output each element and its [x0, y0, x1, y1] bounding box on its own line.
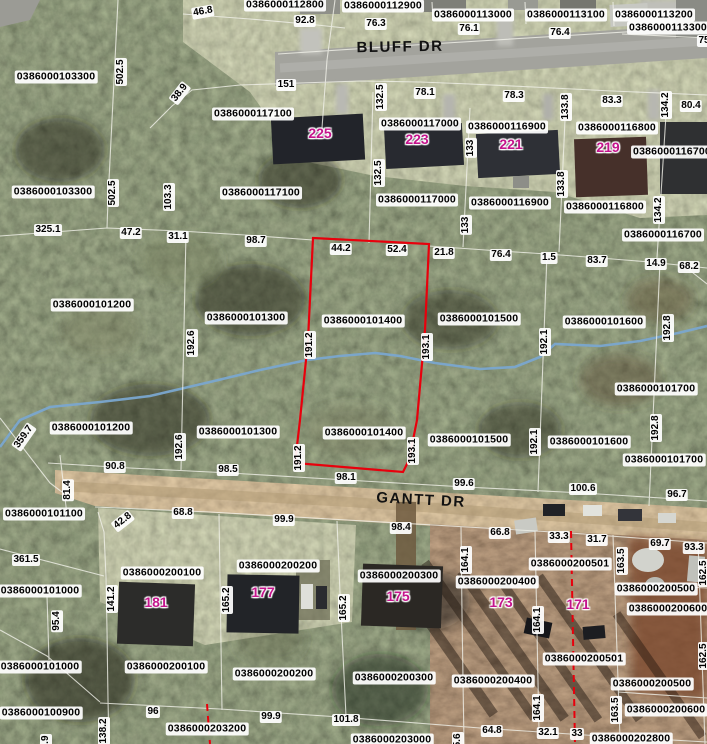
dimension-label: 101.8	[332, 714, 360, 726]
parcel-id-label: 0386000200100	[125, 661, 208, 674]
dimension-label: 163.5	[616, 547, 628, 575]
parcel-id-label: 0386000200200	[233, 668, 316, 681]
dimension-label: 92.8	[294, 15, 316, 27]
dimension-label: 38.9	[168, 80, 191, 105]
parcel-id-label: 0386000101400	[323, 427, 406, 440]
parcel-id-label: 0386000200500	[611, 678, 694, 691]
parcel-id-label: 0386000117000	[379, 118, 461, 131]
dimension-label: 96.7	[666, 489, 688, 501]
dimension-label: 99.6	[453, 478, 475, 490]
parcel-id-label: 0386000113100	[525, 9, 607, 22]
house-number-label: 173	[489, 594, 512, 610]
dimension-label: 134.2	[653, 196, 665, 224]
dimension-label: 138.2	[98, 717, 110, 744]
parcel-id-label: 0386000200500	[615, 583, 698, 596]
house-number-label: 171	[566, 596, 589, 612]
parcel-id-label: 0386000116900	[469, 197, 551, 210]
dimension-label: 192.1	[529, 428, 541, 456]
parcel-id-label: 0386000101500	[438, 313, 521, 326]
house-number-label: 223	[405, 131, 428, 147]
dimension-label: 98.1	[335, 472, 357, 484]
parcel-id-label: 0386000101000	[0, 585, 81, 598]
dimension-label: 103.3	[163, 183, 175, 211]
parcel-id-label: 0386000116700	[631, 146, 707, 159]
dimension-label: 90.8	[104, 461, 126, 473]
dimension-label: 151	[276, 79, 296, 91]
dimension-label: 95.4	[51, 610, 63, 632]
dimension-label: 52.4	[386, 244, 408, 256]
dimension-label: 99.9	[273, 514, 295, 526]
parcel-id-label: 0386000116800	[564, 201, 646, 214]
parcel-id-label: 0386000103300	[12, 186, 95, 199]
parcel-id-label: 0386000200300	[358, 570, 441, 583]
parcel-id-label: 0386000112800	[244, 0, 326, 12]
street-name-label: BLUFF DR	[356, 38, 443, 57]
dimension-label: 164.1	[532, 694, 544, 722]
dimension-label: 502.5	[107, 179, 119, 207]
parcel-id-label: 0386000101300	[205, 312, 288, 325]
parcel-id-label: 0386000200300	[353, 672, 436, 685]
dimension-label: 81.4	[62, 479, 74, 501]
dimension-label: 133.8	[556, 170, 568, 198]
parcel-id-label: 0386000113300	[627, 22, 707, 35]
parcel-id-label: 0386000101600	[563, 316, 646, 329]
dimension-label: 44.2	[330, 243, 352, 255]
dimension-label: 98.4	[390, 522, 412, 534]
dimension-label: 46.8	[191, 4, 215, 20]
dimension-label: 192.6	[174, 433, 186, 461]
dimension-label: 193.1	[421, 333, 433, 361]
parcel-id-label: 0386000116700	[622, 229, 704, 242]
dimension-label: 132.5	[375, 83, 387, 111]
dimension-label: 133	[460, 215, 472, 235]
parcel-id-label: 0386000101500	[428, 434, 511, 447]
parcel-id-label: 0386000101700	[623, 454, 706, 467]
dimension-label: 96	[146, 706, 160, 718]
house-number-label: 181	[144, 594, 167, 610]
dimension-label: 78.3	[503, 90, 525, 102]
dimension-label: 192.8	[650, 414, 662, 442]
parcel-id-label: 0386000200100	[121, 567, 204, 580]
dimension-label: 191.2	[304, 331, 316, 359]
dimension-label: 76.4	[549, 27, 571, 39]
parcel-id-label: 0386000200400	[452, 675, 535, 688]
house-number-label: 225	[308, 125, 331, 141]
parcel-id-label: 0386000200400	[456, 576, 539, 589]
parcel-id-label: 0386000202800	[590, 733, 673, 744]
dimension-label: 165.2	[221, 586, 233, 614]
dimension-label: 192.1	[539, 328, 551, 356]
dimension-label: 83.7	[586, 255, 608, 267]
dimension-label: 31.1	[167, 231, 189, 243]
dimension-label: 83.3	[601, 95, 623, 107]
parcel-id-label: 0386000113200	[613, 9, 695, 22]
dimension-label: 76.4	[490, 249, 512, 261]
parcel-id-label: 0386000101200	[50, 422, 133, 435]
dimension-label: 193.1	[407, 437, 419, 465]
dimension-label: 162.5	[698, 559, 707, 587]
dimension-label: 137.9	[40, 734, 52, 744]
dimension-label: 76.1	[458, 23, 480, 35]
dimension-label: 100.6	[569, 483, 597, 495]
parcel-id-label: 0386000200600	[625, 704, 707, 717]
parcel-id-label: 0386000101300	[197, 426, 280, 439]
dimension-label: 66.8	[489, 527, 511, 539]
parcel-id-label: 0386000103300	[15, 71, 98, 84]
dimension-label: 132.5	[373, 159, 385, 187]
dimension-label: 192.8	[662, 314, 674, 342]
parcel-id-label: 0386000117000	[376, 194, 458, 207]
parcel-id-label: 0386000112900	[342, 0, 424, 13]
parcel-id-label: 0386000200200	[237, 560, 320, 573]
gis-map-viewport[interactable]: 0386000112800038600011290003860001130000…	[0, 0, 707, 744]
dimension-label: 68.2	[678, 261, 700, 273]
dimension-label: 191.2	[293, 444, 305, 472]
dimension-label: 502.5	[115, 58, 127, 86]
dimension-label: 163.5	[610, 696, 622, 724]
parcel-id-label: 0386000117100	[220, 187, 302, 200]
dimension-label: 134.2	[660, 91, 672, 119]
dimension-label: 42.8	[110, 509, 135, 532]
house-number-label: 221	[499, 136, 522, 152]
dimension-label: 75	[697, 35, 707, 47]
dimension-label: 164.1	[532, 606, 544, 634]
dimension-label: 14.9	[645, 258, 667, 270]
parcel-id-label: 0386000101100	[3, 508, 85, 521]
dimension-label: 133	[465, 138, 477, 158]
dimension-label: 165.2	[338, 594, 350, 622]
dimension-label: 93.3	[683, 542, 705, 554]
dimension-label: 98.7	[245, 235, 267, 247]
dimension-label: 165.6	[452, 732, 464, 744]
parcel-id-label: 0386000113000	[432, 9, 514, 22]
parcel-id-label: 0386000200501	[543, 653, 626, 666]
parcel-id-label: 0386000101200	[51, 299, 134, 312]
parcel-id-label: 0386000101000	[0, 661, 81, 674]
dimension-label: 325.1	[34, 224, 62, 236]
street-name-label: GANTT DR	[376, 489, 466, 511]
dimension-label: 69.7	[649, 538, 671, 550]
dimension-label: 47.2	[120, 227, 142, 239]
house-number-label: 219	[596, 139, 619, 155]
dimension-label: 80.4	[680, 100, 702, 112]
dimension-label: 68.8	[172, 507, 194, 519]
parcel-id-label: 0386000200600	[627, 603, 707, 616]
parcel-id-label: 0386000100900	[0, 707, 82, 720]
dimension-label: 164.1	[460, 546, 472, 574]
dimension-label: 141.2	[106, 585, 118, 613]
dimension-label: 64.8	[481, 725, 503, 737]
map-labels-layer: 0386000112800038600011290003860001130000…	[0, 0, 707, 744]
parcel-id-label: 0386000101700	[615, 383, 698, 396]
dimension-label: 32.1	[537, 727, 559, 739]
dimension-label: 33.3	[548, 531, 570, 543]
parcel-id-label: 0386000101400	[322, 315, 405, 328]
dimension-label: 359.7	[11, 422, 37, 452]
parcel-id-label: 0386000203200	[166, 723, 249, 736]
dimension-label: 21.8	[433, 247, 455, 259]
dimension-label: 99.9	[260, 711, 282, 723]
parcel-id-label: 0386000117100	[212, 108, 294, 121]
dimension-label: 1.5	[541, 252, 558, 264]
parcel-id-label: 0386000203000	[351, 734, 434, 744]
house-number-label: 175	[386, 588, 409, 604]
dimension-label: 192.6	[186, 329, 198, 357]
dimension-label: 76.3	[365, 18, 387, 30]
parcel-id-label: 0386000101600	[548, 436, 631, 449]
dimension-label: 31.7	[586, 534, 608, 546]
dimension-label: 133.8	[560, 93, 572, 121]
parcel-id-label: 0386000116900	[466, 121, 548, 134]
dimension-label: 78.1	[414, 87, 436, 99]
parcel-id-label: 0386000200501	[529, 558, 612, 571]
dimension-label: 162.5	[698, 642, 707, 670]
parcel-id-label: 0386000116800	[576, 122, 658, 135]
dimension-label: 361.5	[12, 554, 40, 566]
dimension-label: 98.5	[217, 464, 239, 476]
dimension-label: 33	[570, 728, 584, 740]
house-number-label: 177	[251, 584, 274, 600]
